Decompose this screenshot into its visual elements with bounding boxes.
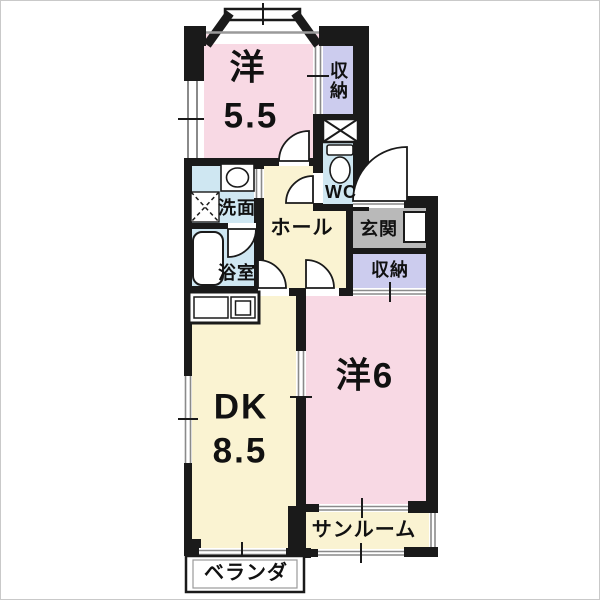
wall-segment (304, 549, 318, 557)
wall-segment (306, 504, 319, 512)
window-east-sunroom (429, 513, 437, 547)
floorplan-drawing (1, 1, 599, 599)
wall-segment (296, 398, 306, 506)
wall-segment (289, 288, 306, 296)
wall-segment (346, 248, 438, 254)
label-closet-east: 収納 (371, 261, 409, 279)
shoe-cabinet-icon (404, 212, 426, 242)
door-gap-wc (313, 173, 323, 203)
label-sunroom: サンルーム (312, 520, 416, 540)
label-washroom: 洗面 (218, 199, 256, 217)
wall-segment (404, 196, 438, 208)
label-wc: WC (325, 183, 357, 201)
label-closet-north: 収納 (329, 61, 347, 101)
door-gap-hall-western6 (306, 288, 339, 296)
wall-segment (426, 208, 438, 513)
wall-segment (404, 547, 438, 557)
window-west-western55 (178, 81, 204, 158)
bay-window (206, 3, 319, 45)
label-veranda: ベランダ (204, 563, 288, 583)
label-western55-name: 洋 (229, 51, 266, 86)
label-dk-size: 8.5 (213, 434, 268, 469)
label-entrance: 玄関 (360, 220, 398, 238)
wall-segment (184, 26, 204, 81)
wall-segment (408, 501, 438, 513)
label-hall: ホール (271, 218, 334, 238)
label-western55-size: 5.5 (224, 99, 279, 134)
label-dk-name: DK (214, 390, 269, 425)
room-western-6 (306, 296, 426, 504)
wall-segment (346, 254, 353, 296)
washroom-door (254, 169, 264, 198)
wall-segment (189, 223, 228, 229)
door-gap-hall-dk (258, 288, 289, 296)
sink-icon (221, 164, 254, 191)
wall-segment (296, 296, 306, 351)
shelf-x-icon (323, 119, 358, 142)
toilet-icon (327, 145, 353, 183)
wall-segment (313, 114, 323, 173)
wall-segment (254, 158, 264, 169)
label-bathroom: 浴室 (218, 264, 256, 282)
kitchen-sink-icon (194, 297, 228, 318)
kitchen-counter-icon (189, 292, 259, 323)
label-western6: 洋6 (336, 359, 394, 394)
washer-pan-icon (191, 192, 219, 222)
floorplan-image: 洋 5.5 収納 WC 洗面 浴室 ホール 玄関 収納 洋6 DK 8.5 サン… (0, 0, 600, 600)
wall-segment (346, 204, 353, 254)
